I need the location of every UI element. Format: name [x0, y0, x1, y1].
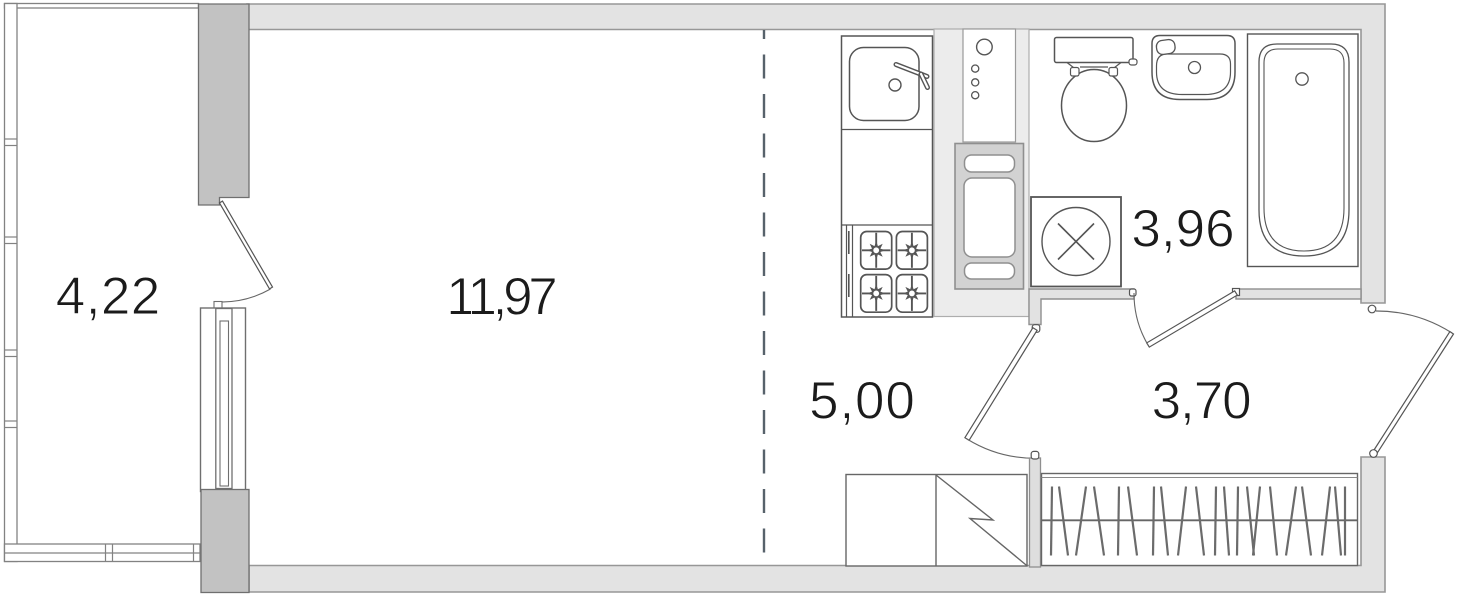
svg-text:5,00: 5,00: [809, 372, 915, 431]
svg-text:4,22: 4,22: [56, 267, 160, 326]
svg-text:3,70: 3,70: [1152, 372, 1252, 431]
svg-text:3,96: 3,96: [1131, 199, 1234, 258]
svg-text:11,97: 11,97: [446, 268, 557, 327]
